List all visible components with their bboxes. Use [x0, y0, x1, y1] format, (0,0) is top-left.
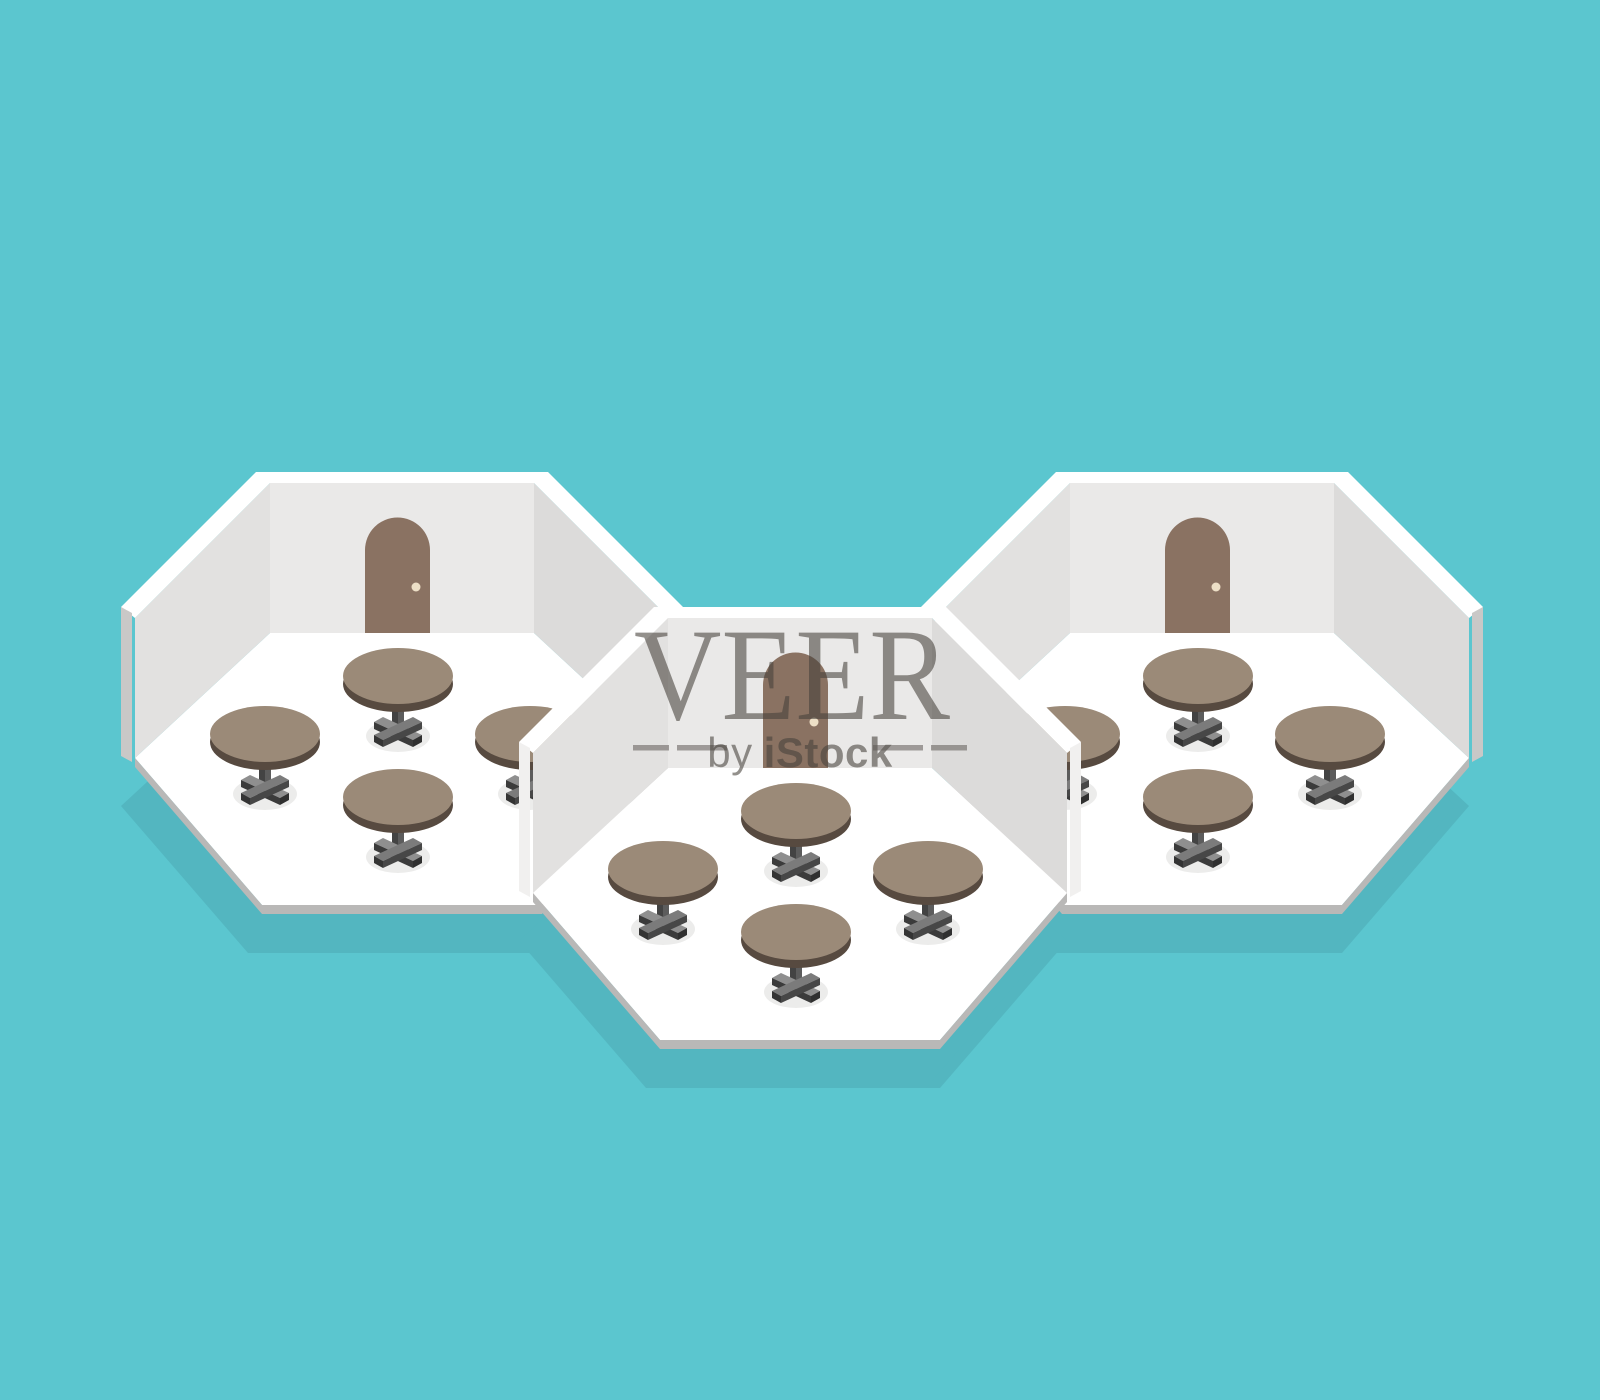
watermark-dash-right-outer — [931, 745, 967, 751]
watermark-subtitle-prefix: by — [707, 729, 752, 776]
watermark: VEER byiStock — [633, 601, 967, 776]
isometric-scene: VEER byiStock — [0, 0, 1600, 1400]
watermark-dash-right-inner — [873, 745, 923, 751]
watermark-subtitle-brand: iStock — [764, 729, 893, 776]
watermark-subtitle: byiStock — [707, 729, 893, 776]
illustration-canvas: VEER byiStock — [0, 0, 1600, 1400]
watermark-dash-left-outer — [633, 745, 669, 751]
watermark-title: VEER — [634, 601, 950, 748]
